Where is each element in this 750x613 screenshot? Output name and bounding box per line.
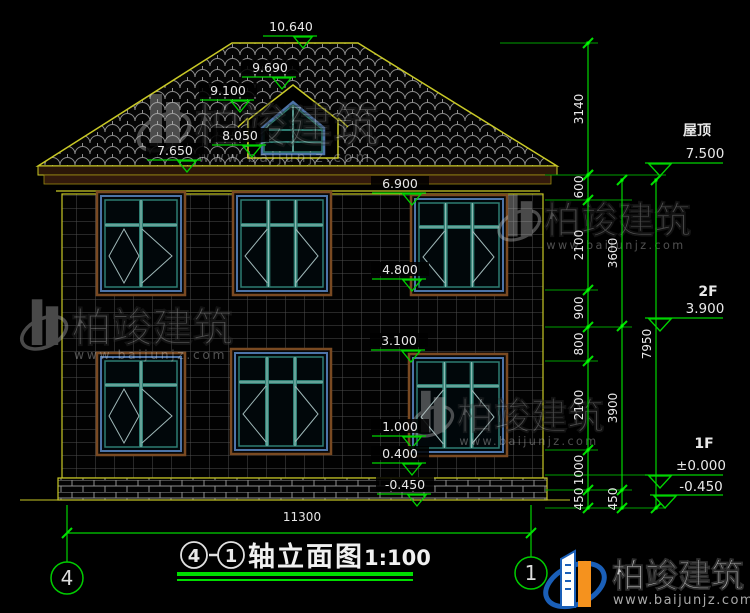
level-value: ±0.000: [676, 458, 726, 474]
window-1F: [97, 353, 185, 455]
dimension-label: 800: [572, 333, 586, 356]
elevation-drawing: 柏竣建筑www.baijunjz.com柏竣建筑www.baijunjz.com…: [0, 0, 750, 613]
axis-bubble-right: 1: [515, 557, 547, 589]
watermark-url-text: www.baijunjz.com: [198, 150, 372, 166]
dimension-label: 3900: [606, 393, 620, 424]
watermark-brand-text: 柏竣建筑: [71, 304, 233, 352]
level-symbol: -0.450: [650, 479, 723, 508]
elevation-marker-value: 9.100: [210, 83, 246, 98]
window-2F: [97, 192, 185, 295]
elevation-marker-value: 8.050: [222, 128, 258, 143]
logo-url-text: www.baijunjz.com: [613, 593, 750, 608]
cad-viewport: 柏竣建筑www.baijunjz.com柏竣建筑www.baijunjz.com…: [0, 0, 750, 613]
elevation-marker-value: 10.640: [269, 19, 313, 34]
watermark-brand-text: 柏竣建筑: [544, 199, 691, 242]
elevation-marker-value: 7.650: [157, 143, 193, 158]
level-label: 2F: [698, 284, 717, 300]
level-triangle-icon: [649, 476, 671, 488]
overall-dim-label: 11300: [283, 510, 321, 524]
elevation-marker-value: -0.450: [385, 477, 425, 492]
level-label: 屋顶: [683, 123, 711, 139]
level-value: -0.450: [679, 479, 723, 495]
axis-bubble-left-number: 4: [61, 566, 74, 590]
dimension-label: 2100: [572, 390, 586, 421]
elevation-marker-value: 0.400: [382, 446, 418, 461]
brand-logo: 柏竣建筑 www.baijunjz.com: [539, 551, 750, 613]
dimension-label: 450: [572, 488, 586, 511]
level-value: 3.900: [686, 301, 725, 317]
window-2F: [411, 195, 507, 295]
dimension-label: 450: [606, 488, 620, 511]
drawing-title: 4 1 轴立面图 1:100: [177, 541, 431, 581]
eave-fascia: [38, 166, 557, 175]
dimension-chain: 3140: [572, 38, 593, 180]
title-name: 轴立面图: [248, 541, 364, 573]
watermark-url-text: www.baijunjz.com: [459, 435, 598, 448]
dimension-label: 2100: [572, 230, 586, 261]
dimension-label: 7950: [640, 329, 654, 360]
dimension-label: 900: [572, 297, 586, 320]
dimension-label: 1000: [572, 455, 586, 486]
dimension-label: 600: [572, 176, 586, 199]
logo-building-white: [561, 551, 575, 607]
title-underline-thin: [177, 579, 413, 581]
window-1F: [231, 349, 331, 454]
dimension-label: 3140: [572, 94, 586, 125]
axis-bubble-right-number: 1: [525, 561, 538, 585]
level-label: 1F: [694, 436, 713, 452]
logo-brand-text: 柏竣建筑: [612, 556, 744, 595]
title-underline-thick: [177, 572, 413, 576]
title-axis-end: 1: [225, 546, 238, 567]
elevation-marker-value: 9.690: [252, 60, 288, 75]
elevation-marker-value: 1.000: [382, 419, 418, 434]
level-symbol: 屋顶7.500: [645, 123, 724, 176]
logo-building-orange: [578, 561, 591, 607]
watermark: 柏竣建筑www.baijunjz.com: [17, 299, 234, 362]
level-symbol: 2F3.900: [645, 284, 724, 331]
title-axis-start: 4: [188, 546, 201, 567]
elevation-marker-value: 6.900: [382, 176, 418, 191]
elevation-marker-value: 4.800: [382, 262, 418, 277]
level-triangle-icon: [649, 164, 671, 176]
eave-band: [44, 175, 551, 184]
elevation-marker-value: 3.100: [381, 333, 417, 348]
level-value: 7.500: [686, 146, 725, 162]
dimension-label: 3600: [606, 238, 620, 269]
plinth-brick-hatch: [58, 478, 547, 500]
title-scale: 1:100: [364, 546, 431, 570]
axis-bubble-left: 4: [51, 562, 83, 594]
watermark-url-text: www.baijunjz.com: [74, 348, 227, 362]
window-2F: [233, 192, 331, 295]
